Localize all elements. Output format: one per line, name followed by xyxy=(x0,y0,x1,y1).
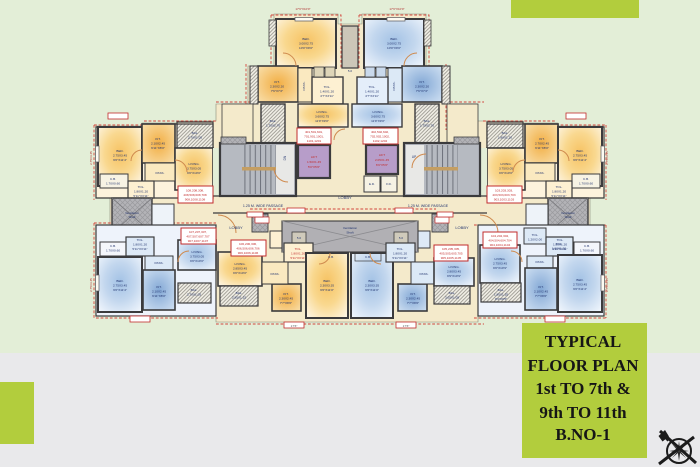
svg-text:9th TO 11th: 9th TO 11th xyxy=(539,403,627,422)
svg-text:17'6": 17'6" xyxy=(403,324,410,328)
svg-text:4'7"X3'11": 4'7"X3'11" xyxy=(320,94,334,98)
svg-text:1.80X1.20: 1.80X1.20 xyxy=(498,136,512,140)
svg-text:BED.: BED. xyxy=(323,279,330,283)
svg-text:TYPICAL: TYPICAL xyxy=(545,332,622,351)
svg-text:106,206,306,: 106,206,306, xyxy=(239,242,257,246)
svg-text:TOL.: TOL. xyxy=(556,185,563,189)
svg-text:2.75X3.45: 2.75X3.45 xyxy=(113,154,127,158)
svg-text:1.40X1.20: 1.40X1.20 xyxy=(320,90,334,94)
svg-text:7'6"X7'2": 7'6"X7'2" xyxy=(416,89,428,93)
svg-text:1.40X1.20: 1.40X1.20 xyxy=(365,90,379,94)
svg-text:FLOOR PLAN: FLOOR PLAN xyxy=(528,356,640,375)
svg-text:1.25 M. WIDE PASSAGE: 1.25 M. WIDE PASSAGE xyxy=(243,204,284,208)
svg-text:2.10X2.45: 2.10X2.45 xyxy=(534,290,548,294)
svg-text:1.75X2.70: 1.75X2.70 xyxy=(420,124,434,128)
svg-text:2.30X3.35: 2.30X3.35 xyxy=(320,284,334,288)
svg-text:11'9"X9'0": 11'9"X9'0" xyxy=(315,119,329,123)
svg-text:5.0: 5.0 xyxy=(399,236,404,240)
svg-text:TOL.: TOL. xyxy=(397,247,404,251)
svg-text:2.80X3.45: 2.80X3.45 xyxy=(447,270,461,274)
svg-text:BED.: BED. xyxy=(116,149,123,153)
svg-text:2.85X1.15: 2.85X1.15 xyxy=(232,296,246,300)
svg-text:KIT.: KIT. xyxy=(539,137,544,141)
svg-text:LIVING.: LIVING. xyxy=(234,262,245,266)
svg-text:5.0: 5.0 xyxy=(297,236,302,240)
svg-text:403,503,603,703: 403,503,603,703 xyxy=(492,193,516,197)
svg-text:E.D.: E.D. xyxy=(369,182,375,186)
svg-text:2.85X3.45: 2.85X3.45 xyxy=(233,267,247,271)
svg-text:2.30X2.45: 2.30X2.45 xyxy=(279,297,293,301)
svg-text:2.70X1.05: 2.70X1.05 xyxy=(188,136,202,140)
svg-text:2.10X2.45: 2.10X2.45 xyxy=(151,142,165,146)
svg-text:2.30X2.45: 2.30X2.45 xyxy=(406,297,420,301)
svg-text:BED.: BED. xyxy=(390,37,397,41)
svg-text:9'9"X10'9": 9'9"X10'9" xyxy=(447,274,461,278)
svg-text:DN: DN xyxy=(283,155,287,160)
svg-text:2.75X3.45: 2.75X3.45 xyxy=(605,278,609,292)
svg-text:TOL.: TOL. xyxy=(295,247,302,251)
svg-text:C.B.: C.B. xyxy=(110,244,116,248)
svg-text:1.80X1.20: 1.80X1.20 xyxy=(552,247,566,251)
svg-text:17'6": 17'6" xyxy=(291,324,298,328)
svg-text:3.60X2.75: 3.60X2.75 xyxy=(371,115,385,119)
svg-text:2.10X2.45: 2.10X2.45 xyxy=(152,290,166,294)
svg-text:1.80X1.20: 1.80X1.20 xyxy=(552,190,566,194)
svg-text:KIT.: KIT. xyxy=(538,285,543,289)
svg-text:9'0"X10'0": 9'0"X10'0" xyxy=(190,259,204,263)
svg-text:5'11"X3'11": 5'11"X3'11" xyxy=(132,247,147,251)
svg-text:2.75X3.45: 2.75X3.45 xyxy=(89,278,93,292)
svg-text:PASS.: PASS. xyxy=(536,260,545,264)
svg-text:F.D.: F.D. xyxy=(386,182,392,186)
svg-text:6'9"X5'0": 6'9"X5'0" xyxy=(376,163,388,167)
svg-text:PASS.: PASS. xyxy=(392,81,396,90)
svg-text:1.80X1.20: 1.80X1.20 xyxy=(393,252,407,256)
svg-text:2.75X3.45: 2.75X3.45 xyxy=(573,154,587,158)
svg-text:5.0: 5.0 xyxy=(348,69,353,73)
svg-text:907,1007,1107: 907,1007,1107 xyxy=(188,239,209,243)
svg-text:BAL.: BAL. xyxy=(191,288,198,292)
svg-text:9'0"X10'0": 9'0"X10'0" xyxy=(187,171,201,175)
svg-text:1102,1202: 1102,1202 xyxy=(373,139,388,143)
svg-text:6'11"X8'0": 6'11"X8'0" xyxy=(152,294,166,298)
svg-text:9'6"X11'0": 9'6"X11'0" xyxy=(320,288,334,292)
svg-text:11'9"X9'0": 11'9"X9'0" xyxy=(371,119,385,123)
svg-text:407,507,607,707: 407,507,607,707 xyxy=(186,235,210,239)
svg-text:BAL.: BAL. xyxy=(449,291,456,295)
svg-text:906,1006,1106: 906,1006,1106 xyxy=(238,251,259,255)
svg-text:1.75X2.70: 1.75X2.70 xyxy=(266,124,280,128)
svg-text:5'11"X3'11": 5'11"X3'11" xyxy=(133,194,148,198)
svg-text:6'11"X8'0": 6'11"X8'0" xyxy=(535,146,549,150)
svg-text:C.B.: C.B. xyxy=(365,255,371,259)
svg-text:2.75X3.45: 2.75X3.45 xyxy=(89,151,93,165)
svg-text:9'0"X11'4": 9'0"X11'4" xyxy=(573,158,587,162)
svg-text:2.70X1.05: 2.70X1.05 xyxy=(187,293,201,297)
svg-text:1.80X1.35: 1.80X1.35 xyxy=(494,293,508,297)
svg-text:PASS.: PASS. xyxy=(156,171,165,175)
svg-text:2.30X3.35: 2.30X3.35 xyxy=(365,284,379,288)
svg-text:1.25 M. WIDE PASSAGE: 1.25 M. WIDE PASSAGE xyxy=(408,204,449,208)
svg-text:2.05X1.45: 2.05X1.45 xyxy=(375,158,389,162)
svg-text:1.70X0.60: 1.70X0.60 xyxy=(106,182,120,186)
svg-text:BED.: BED. xyxy=(576,149,583,153)
svg-text:LIVING.: LIVING. xyxy=(188,162,199,166)
svg-text:C.B.: C.B. xyxy=(583,177,589,181)
svg-text:BAL.: BAL. xyxy=(192,131,199,135)
svg-text:KIT.: KIT. xyxy=(419,80,424,84)
svg-text:104,204,304,: 104,204,304, xyxy=(491,234,509,238)
svg-text:PASS.: PASS. xyxy=(536,171,545,175)
svg-text:6'11"X8'0": 6'11"X8'0" xyxy=(151,146,165,150)
svg-text:1.80X1.20: 1.80X1.20 xyxy=(133,243,147,247)
svg-text:406,506,606,706: 406,506,606,706 xyxy=(236,247,260,251)
svg-text:10'0"X9'0": 10'0"X9'0" xyxy=(387,46,401,50)
svg-text:LIVING.: LIVING. xyxy=(372,110,383,114)
svg-text:5'11"X3'11": 5'11"X3'11" xyxy=(551,194,566,198)
svg-text:KIT.: KIT. xyxy=(283,292,288,296)
svg-text:408,508,608,708: 408,508,608,708 xyxy=(183,193,207,197)
svg-text:7'7"X8'0": 7'7"X8'0" xyxy=(407,301,419,305)
svg-text:1.80X1.20: 1.80X1.20 xyxy=(134,190,148,194)
svg-text:LOBBY: LOBBY xyxy=(455,225,469,230)
svg-text:TOL.: TOL. xyxy=(369,85,376,89)
svg-text:9'0"X11'4": 9'0"X11'4" xyxy=(113,158,127,162)
svg-text:C.B.: C.B. xyxy=(110,177,116,181)
svg-text:LIVING.: LIVING. xyxy=(448,265,459,269)
svg-text:KIT.: KIT. xyxy=(155,137,160,141)
svg-text:BAL.: BAL. xyxy=(498,288,505,292)
svg-text:BAL.: BAL. xyxy=(236,291,243,295)
svg-text:LIVING.: LIVING. xyxy=(191,250,202,254)
svg-text:5'0"X5'0": 5'0"X5'0" xyxy=(308,165,320,169)
svg-text:9'0"X11'4": 9'0"X11'4" xyxy=(113,288,127,292)
svg-text:3.05X1.05: 3.05X1.05 xyxy=(445,296,459,300)
svg-text:1st TO 7th &: 1st TO 7th & xyxy=(535,379,630,398)
svg-text:2.70X2.45: 2.70X2.45 xyxy=(535,142,549,146)
svg-text:TOL.: TOL. xyxy=(532,233,539,237)
svg-text:401,501,601,: 401,501,601, xyxy=(305,130,323,134)
svg-text:PASS.: PASS. xyxy=(155,261,164,265)
svg-text:LIFT: LIFT xyxy=(379,153,385,157)
svg-text:1.70X0.60: 1.70X0.60 xyxy=(580,249,594,253)
svg-text:B.NO-1: B.NO-1 xyxy=(555,425,610,444)
svg-text:KIT.: KIT. xyxy=(274,80,279,84)
svg-text:2.30X2.20: 2.30X2.20 xyxy=(415,85,429,89)
svg-text:904,1004,1104: 904,1004,1104 xyxy=(490,243,511,247)
svg-text:3.75X3.05: 3.75X3.05 xyxy=(190,255,204,259)
svg-text:107,207,307,: 107,207,307, xyxy=(189,230,207,234)
svg-text:BED.: BED. xyxy=(302,37,309,41)
svg-text:BED.: BED. xyxy=(576,278,583,282)
svg-text:UP: UP xyxy=(412,155,416,159)
svg-text:2.75X3.45: 2.75X3.45 xyxy=(493,262,507,266)
svg-text:1101,1201: 1101,1201 xyxy=(307,139,322,143)
svg-text:404,504,604,704: 404,504,604,704 xyxy=(488,239,512,243)
svg-text:LIFT: LIFT xyxy=(311,155,317,159)
svg-text:TOL.: TOL. xyxy=(137,238,144,242)
svg-text:BED.: BED. xyxy=(116,279,123,283)
svg-text:702,902,1002,: 702,902,1002, xyxy=(370,135,390,139)
svg-text:BAL.: BAL. xyxy=(270,119,277,123)
svg-text:Shaft: Shaft xyxy=(128,215,135,219)
svg-text:4'7"X3'11": 4'7"X3'11" xyxy=(365,94,379,98)
svg-text:105,205,305,: 105,205,305, xyxy=(442,247,460,251)
svg-text:KIT.: KIT. xyxy=(410,292,415,296)
svg-text:3.75X3.05: 3.75X3.05 xyxy=(499,167,513,171)
svg-text:3.60X2.75: 3.60X2.75 xyxy=(315,115,329,119)
svg-text:7'7"X8'0": 7'7"X8'0" xyxy=(535,294,547,298)
svg-text:9'0"X11'4": 9'0"X11'4" xyxy=(573,287,587,291)
svg-text:5'11"X3'11": 5'11"X3'11" xyxy=(290,256,305,260)
svg-text:103,203,303,: 103,203,303, xyxy=(495,189,513,193)
svg-text:3.00X2.75: 3.00X2.75 xyxy=(299,42,313,46)
svg-text:17'6"X10'0": 17'6"X10'0" xyxy=(389,7,404,11)
svg-text:701,901,1001,: 701,901,1001, xyxy=(304,135,324,139)
svg-text:9'0"X10'9": 9'0"X10'9" xyxy=(493,266,507,270)
svg-text:PASS.: PASS. xyxy=(271,272,280,276)
svg-text:LOBBY: LOBBY xyxy=(338,195,352,200)
svg-text:LOBBY: LOBBY xyxy=(229,225,243,230)
svg-text:1.70X0.60: 1.70X0.60 xyxy=(579,182,593,186)
svg-text:KIT.: KIT. xyxy=(156,285,161,289)
svg-text:1.80X1.20: 1.80X1.20 xyxy=(291,252,305,256)
svg-text:903,1003,1103: 903,1003,1103 xyxy=(494,198,515,202)
svg-text:BAL.: BAL. xyxy=(502,131,509,135)
svg-text:TOL.: TOL. xyxy=(556,242,563,246)
svg-text:1.50X1.45: 1.50X1.45 xyxy=(307,160,321,164)
svg-text:7'6"X7'2": 7'6"X7'2" xyxy=(271,89,283,93)
svg-text:2.75X3.45: 2.75X3.45 xyxy=(113,284,127,288)
svg-text:1.70X0.60: 1.70X0.60 xyxy=(106,249,120,253)
svg-text:BAL.: BAL. xyxy=(424,119,431,123)
svg-text:2.75X3.45: 2.75X3.45 xyxy=(605,151,609,165)
svg-text:C.B.: C.B. xyxy=(584,244,590,248)
svg-text:905,1005,1105: 905,1005,1105 xyxy=(441,256,462,260)
svg-text:9'0"X10'0": 9'0"X10'0" xyxy=(499,171,513,175)
svg-text:2.75X3.45: 2.75X3.45 xyxy=(573,283,587,287)
svg-text:BED.: BED. xyxy=(368,279,375,283)
svg-text:PASS.: PASS. xyxy=(302,81,306,90)
svg-text:5'11"X3'11": 5'11"X3'11" xyxy=(392,256,407,260)
svg-text:LIVING.: LIVING. xyxy=(500,162,511,166)
svg-text:17'6"X10'0": 17'6"X10'0" xyxy=(295,7,310,11)
svg-text:LIVING.: LIVING. xyxy=(494,257,505,261)
svg-text:2.30X2.20: 2.30X2.20 xyxy=(270,85,284,89)
svg-text:LIVING.: LIVING. xyxy=(316,110,327,114)
svg-text:908,1008,1108: 908,1008,1108 xyxy=(185,198,206,202)
svg-text:C.B.: C.B. xyxy=(328,255,334,259)
svg-text:3.75X3.05: 3.75X3.05 xyxy=(187,167,201,171)
svg-text:108,208,308,: 108,208,308, xyxy=(186,189,204,193)
svg-text:10'0"X9'0": 10'0"X9'0" xyxy=(299,46,313,50)
svg-text:Shaft: Shaft xyxy=(564,215,571,219)
svg-text:TOL.: TOL. xyxy=(138,185,145,189)
svg-text:1.20X2.00: 1.20X2.00 xyxy=(528,238,542,242)
svg-text:Ventilation: Ventilation xyxy=(343,226,358,230)
svg-text:Shaft: Shaft xyxy=(346,231,353,235)
svg-text:PASS.: PASS. xyxy=(420,272,429,276)
svg-text:9'6"X11'0": 9'6"X11'0" xyxy=(365,288,379,292)
svg-text:9'0"X10'0": 9'0"X10'0" xyxy=(233,271,247,275)
svg-text:0'4"X0'5": 0'4"X0'5" xyxy=(495,297,507,301)
svg-text:7'7"X8'0": 7'7"X8'0" xyxy=(280,301,292,305)
svg-text:402,502,602,: 402,502,602, xyxy=(371,130,389,134)
svg-text:3.00X2.75: 3.00X2.75 xyxy=(387,42,401,46)
svg-text:405,505,605,705: 405,505,605,705 xyxy=(439,252,463,256)
svg-text:TOL.: TOL. xyxy=(324,85,331,89)
